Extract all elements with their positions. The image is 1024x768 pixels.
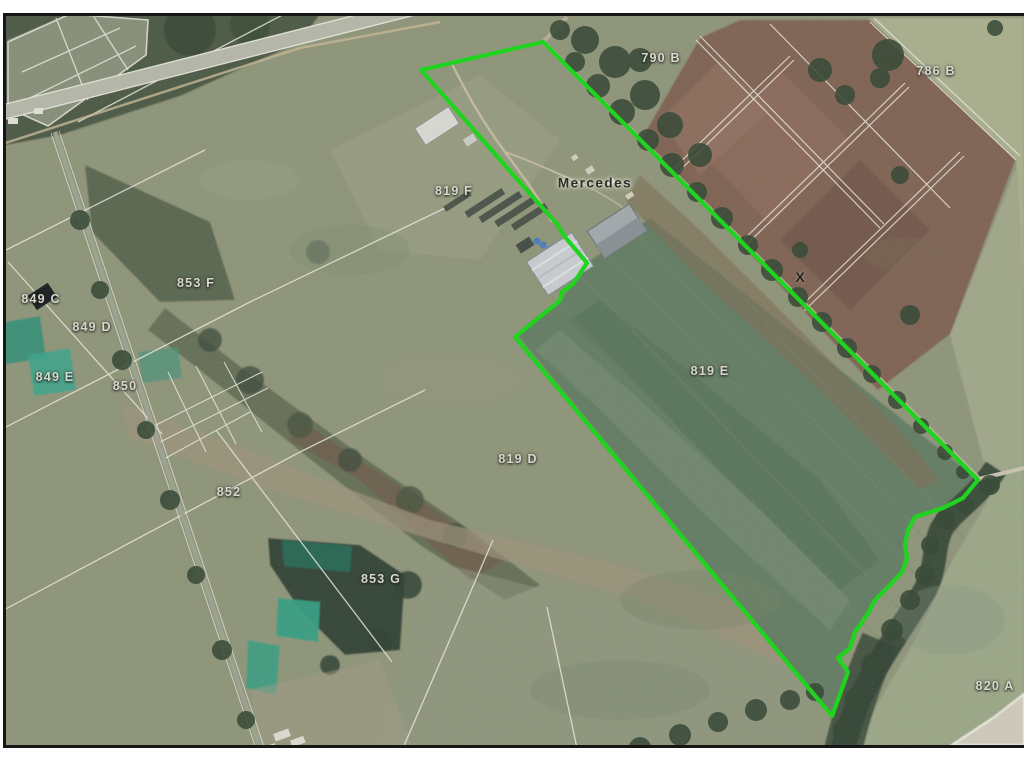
map-viewport: 790 B786 B819 F853 F849 C849 D849 E85085… — [6, 16, 1024, 745]
satellite-noise-overlay — [6, 16, 1024, 745]
listing-photo-page: 790 B786 B819 F853 F849 C849 D849 E85085… — [0, 0, 1024, 768]
satellite-map-image — [6, 16, 1024, 745]
map-image-frame[interactable]: 790 B786 B819 F853 F849 C849 D849 E85085… — [3, 13, 1024, 748]
